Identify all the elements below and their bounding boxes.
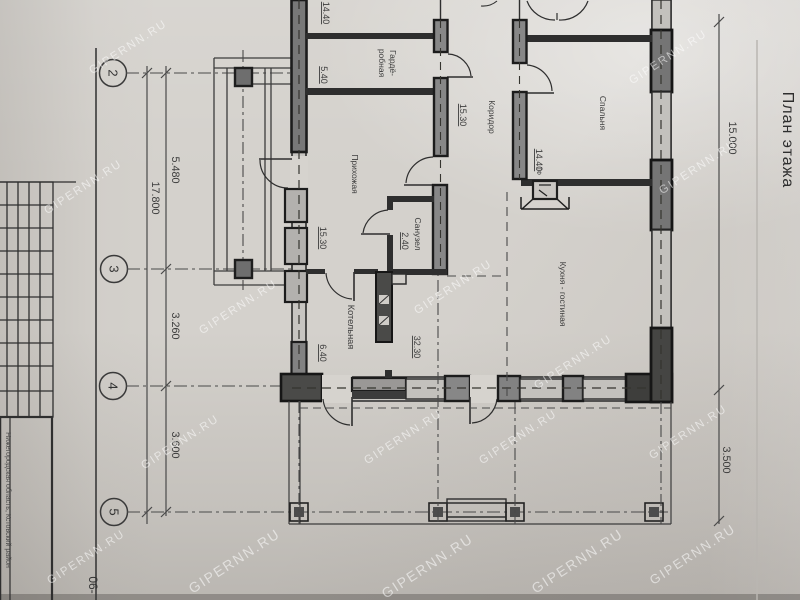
svg-text:Коридор: Коридор: [487, 100, 497, 134]
svg-text:Котельная: Котельная: [346, 305, 356, 349]
svg-text:2: 2: [106, 69, 121, 76]
svg-text:5: 5: [107, 508, 122, 515]
svg-text:5.40: 5.40: [319, 66, 329, 84]
svg-text:3.260: 3.260: [169, 312, 181, 339]
svg-text:15.30: 15.30: [458, 104, 468, 127]
svg-text:3.500: 3.500: [720, 446, 732, 473]
svg-text:2.40: 2.40: [400, 232, 410, 250]
svg-text:GIPERNN.RU: GIPERNN.RU: [379, 530, 477, 600]
svg-text:Санузел: Санузел: [413, 217, 423, 250]
svg-text:робная: робная: [377, 49, 387, 78]
svg-text:3: 3: [107, 265, 122, 272]
svg-text:Кухня - гостиная: Кухня - гостиная: [558, 262, 568, 327]
svg-text:15.30: 15.30: [318, 227, 328, 250]
svg-text:Гардё-: Гардё-: [388, 50, 398, 76]
svg-text:GIPERNN.RU: GIPERNN.RU: [647, 521, 739, 588]
svg-text:Прихожая: Прихожая: [350, 154, 360, 194]
svg-text:GIPERNN.RU: GIPERNN.RU: [139, 413, 221, 472]
svg-text:32.30: 32.30: [412, 336, 422, 359]
svg-text:GIPERNN.RU: GIPERNN.RU: [529, 525, 627, 596]
svg-text:14.40: 14.40: [321, 2, 331, 25]
svg-text:17.800: 17.800: [149, 181, 161, 214]
svg-text:GIPERNN.RU: GIPERNN.RU: [647, 403, 729, 462]
svg-text:4: 4: [106, 382, 121, 389]
svg-text:6.40: 6.40: [318, 344, 328, 362]
svg-text:Спальня: Спальня: [598, 96, 608, 131]
svg-text:06-: 06-: [86, 576, 100, 593]
svg-text:GIPERNN.RU: GIPERNN.RU: [42, 158, 124, 217]
svg-text:GIPERNN.RU: GIPERNN.RU: [186, 525, 284, 596]
svg-text:План этажа: План этажа: [779, 92, 796, 188]
svg-text:GIPERNN.RU: GIPERNN.RU: [412, 258, 494, 317]
svg-text:GIPERNN.RU: GIPERNN.RU: [197, 278, 279, 337]
svg-text:14.40: 14.40: [534, 149, 544, 172]
svg-text:5.480: 5.480: [169, 156, 181, 183]
svg-text:GIPERNN.RU: GIPERNN.RU: [362, 408, 444, 467]
svg-text:GIPERNN.RU: GIPERNN.RU: [87, 18, 169, 77]
svg-text:Нижегородская область, Кстовск: Нижегородская область, Кстовский район: [4, 432, 12, 568]
svg-text:GIPERNN.RU: GIPERNN.RU: [477, 408, 559, 467]
